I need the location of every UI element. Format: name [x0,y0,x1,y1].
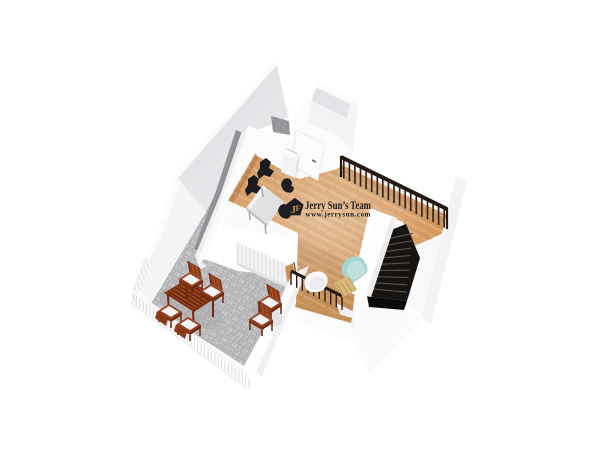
svg-text:www.jerrysun.com: www.jerrysun.com [306,210,371,218]
svg-text:F: F [295,203,300,213]
